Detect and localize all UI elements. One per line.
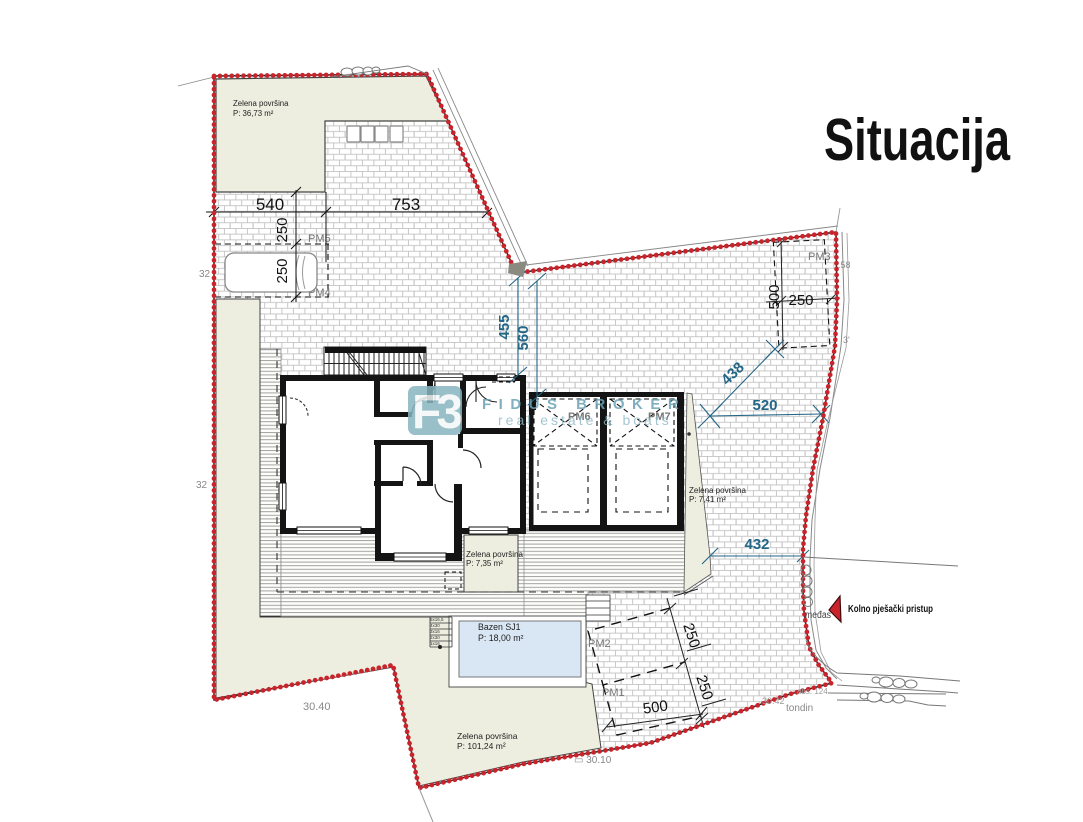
svg-text:1x16: 1x16 <box>430 641 440 646</box>
svg-text:P: 7,41 m²: P: 7,41 m² <box>689 495 726 504</box>
svg-text:Kolno pješački pristup: Kolno pješački pristup <box>848 603 933 615</box>
svg-text:Zelena površina: Zelena površina <box>689 486 746 495</box>
svg-text:30.42: 30.42 <box>762 696 785 706</box>
svg-text:.58: .58 <box>838 260 851 270</box>
svg-text:753: 753 <box>392 195 420 214</box>
svg-text:PM2: PM2 <box>588 638 611 650</box>
svg-text:5x16,5: 5x16,5 <box>430 617 444 622</box>
svg-text:540: 540 <box>256 195 284 214</box>
svg-text:abs. 124: abs. 124 <box>797 687 828 696</box>
svg-text:30.40: 30.40 <box>303 701 331 713</box>
svg-text:P: 18,00 m²: P: 18,00 m² <box>478 633 524 643</box>
svg-text:250: 250 <box>788 292 813 309</box>
svg-text:3': 3' <box>843 335 850 345</box>
svg-text:Situacija: Situacija <box>824 107 1011 173</box>
svg-text:500: 500 <box>642 697 669 717</box>
svg-text:520: 520 <box>752 397 777 414</box>
svg-text:Zelena površina: Zelena površina <box>457 731 518 741</box>
svg-text:međas: međas <box>805 610 831 621</box>
svg-text:455: 455 <box>496 314 513 339</box>
svg-text:250: 250 <box>274 258 291 283</box>
svg-text:Zelena površina: Zelena površina <box>233 99 289 108</box>
svg-text:PM5: PM5 <box>308 233 331 245</box>
svg-text:FIDUS BROKER: FIDUS BROKER <box>482 396 686 413</box>
svg-text:P: 7,35 m²: P: 7,35 m² <box>466 559 503 568</box>
svg-text:P: 101,24 m²: P: 101,24 m² <box>457 741 506 751</box>
svg-text:tondin: tondin <box>786 703 813 714</box>
svg-text:32: 32 <box>196 480 208 491</box>
svg-text:Bazen SJ1: Bazen SJ1 <box>478 622 521 632</box>
svg-text:PM1: PM1 <box>602 687 625 699</box>
svg-text:500: 500 <box>766 284 783 309</box>
svg-text:432: 432 <box>744 536 769 553</box>
svg-text:F3: F3 <box>412 386 461 439</box>
svg-text:real estate & boats: real estate & boats <box>498 412 672 428</box>
svg-text:▭ 30.10: ▭ 30.10 <box>574 755 612 766</box>
svg-text:P: 36,73 m²: P: 36,73 m² <box>233 109 274 118</box>
svg-text:32: 32 <box>199 269 211 280</box>
svg-text:PM3: PM3 <box>808 251 831 263</box>
svg-text:4x30: 4x30 <box>430 623 440 628</box>
svg-text:560: 560 <box>515 325 532 350</box>
svg-text:3x16: 3x16 <box>430 629 440 634</box>
svg-text:2x30: 2x30 <box>430 635 440 640</box>
svg-text:250: 250 <box>274 217 291 242</box>
svg-text:Zelena površina: Zelena površina <box>466 550 523 559</box>
